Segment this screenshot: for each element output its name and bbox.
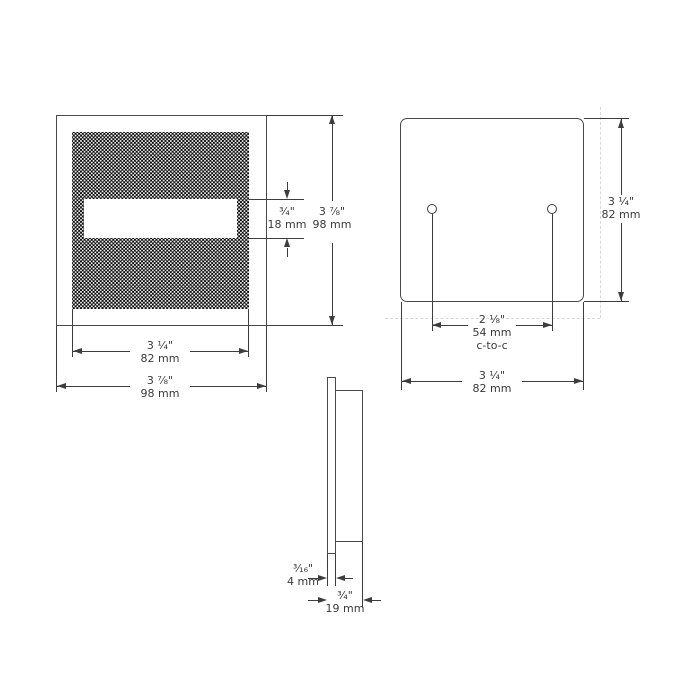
dim-note: c-to-c bbox=[461, 339, 523, 352]
dimension-label: 2 ¹⁄₈" 54 mm c-to-c bbox=[461, 313, 523, 352]
arrowhead-right-icon bbox=[239, 348, 248, 354]
hole-leader-line bbox=[552, 214, 553, 331]
dim-inches: 3 ¹⁄₄" bbox=[129, 339, 191, 352]
mounting-hole-left bbox=[427, 204, 437, 214]
dim-metric: 98 mm bbox=[303, 218, 361, 231]
extension-line bbox=[249, 199, 304, 200]
dimension-label: 3 ⁷⁄₈" 98 mm bbox=[303, 205, 361, 231]
arrowhead-left-icon bbox=[336, 575, 345, 581]
extension-line bbox=[266, 326, 267, 392]
arrowhead-down-icon bbox=[284, 190, 290, 199]
dimension-label: 3 ¹⁄₄" 82 mm bbox=[129, 339, 191, 365]
arrowhead-up-icon bbox=[618, 119, 624, 128]
side-body-profile bbox=[335, 390, 363, 542]
extension-line bbox=[249, 238, 304, 239]
arrowhead-down-icon bbox=[329, 316, 335, 325]
dimension-label: 3 ⁷⁄₈" 98 mm bbox=[129, 374, 191, 400]
dimension-line bbox=[287, 248, 288, 257]
arrowhead-right-icon bbox=[257, 383, 266, 389]
arrowhead-left-icon bbox=[432, 322, 441, 328]
dim-inches: 3 ⁷⁄₈" bbox=[303, 205, 361, 218]
dimension-label: ³⁄₁₆" 4 mm bbox=[281, 562, 325, 588]
dimension-label: 3 ¹⁄₄" 82 mm bbox=[461, 369, 523, 395]
dimension-line bbox=[372, 600, 381, 601]
dimension-line bbox=[621, 223, 622, 301]
extension-line bbox=[583, 302, 584, 390]
dim-metric: 82 mm bbox=[129, 352, 191, 365]
arrowhead-up-icon bbox=[284, 238, 290, 247]
arrowhead-left-icon bbox=[402, 378, 411, 384]
dim-inches: 3 ¹⁄₄" bbox=[461, 369, 523, 382]
dimension-line bbox=[190, 386, 266, 387]
extension-line bbox=[248, 309, 249, 357]
arrowhead-up-icon bbox=[329, 115, 335, 124]
dim-inches: ³⁄₁₆" bbox=[281, 562, 325, 575]
dimension-line bbox=[402, 381, 462, 382]
light-slot bbox=[84, 199, 237, 238]
dim-metric: 98 mm bbox=[129, 387, 191, 400]
dim-inches: 3 ¹⁄₄" bbox=[592, 195, 650, 208]
dimension-line bbox=[332, 243, 333, 325]
dimension-label: 3 ¹⁄₄" 82 mm bbox=[592, 195, 650, 221]
extension-line bbox=[584, 301, 629, 302]
arrowhead-left-icon bbox=[57, 383, 66, 389]
dim-inches: 2 ¹⁄₈" bbox=[461, 313, 523, 326]
dimension-line bbox=[57, 386, 130, 387]
drawing-canvas: ³⁄₄" 18 mm 3 ⁷⁄₈" 98 mm bbox=[0, 0, 700, 700]
extension-line bbox=[267, 325, 343, 326]
extension-line bbox=[335, 554, 336, 586]
dim-inches: ³⁄₄" bbox=[322, 589, 368, 602]
dimension-line bbox=[308, 600, 318, 601]
dim-metric: 54 mm bbox=[461, 326, 523, 339]
mounting-hole-right bbox=[547, 204, 557, 214]
arrowhead-left-icon bbox=[73, 348, 82, 354]
hole-leader-line bbox=[432, 214, 433, 331]
dimension-line bbox=[332, 115, 333, 201]
dim-metric: 82 mm bbox=[461, 382, 523, 395]
dimension-line bbox=[345, 578, 353, 579]
arrowhead-right-icon bbox=[574, 378, 583, 384]
dim-inches: 3 ⁷⁄₈" bbox=[129, 374, 191, 387]
dim-metric: 82 mm bbox=[592, 208, 650, 221]
dim-metric: 4 mm bbox=[281, 575, 325, 588]
dimension-line bbox=[621, 119, 622, 195]
arrowhead-right-icon bbox=[543, 322, 552, 328]
extension-line bbox=[327, 554, 328, 586]
dim-metric: 19 mm bbox=[322, 602, 368, 615]
dimension-label: ³⁄₄" 19 mm bbox=[322, 589, 368, 615]
arrowhead-down-icon bbox=[618, 292, 624, 301]
extension-line bbox=[401, 302, 402, 390]
